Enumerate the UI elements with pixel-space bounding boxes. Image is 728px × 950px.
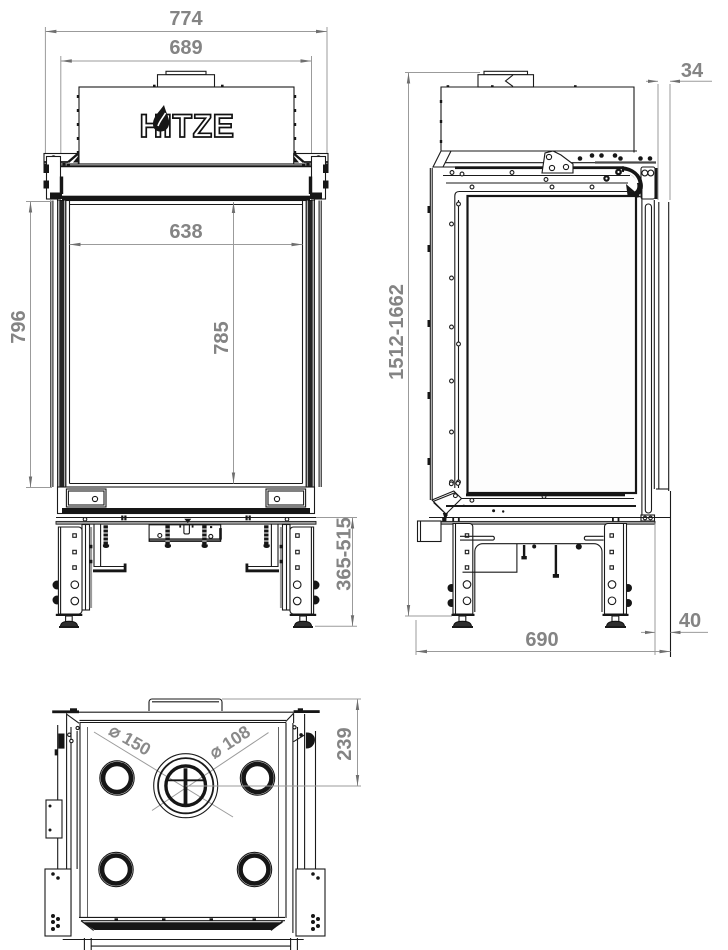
svg-text:239: 239 (334, 727, 356, 760)
svg-text:774: 774 (169, 8, 203, 30)
svg-text:785: 785 (211, 321, 233, 354)
svg-text:690: 690 (525, 629, 558, 651)
svg-text:796: 796 (8, 310, 30, 343)
svg-text:365-515: 365-515 (334, 517, 356, 590)
svg-text:34: 34 (681, 60, 704, 82)
svg-text:40: 40 (679, 610, 701, 632)
svg-text:638: 638 (169, 221, 202, 243)
svg-text:689: 689 (169, 37, 202, 59)
svg-text:1512-1662: 1512-1662 (386, 284, 408, 380)
